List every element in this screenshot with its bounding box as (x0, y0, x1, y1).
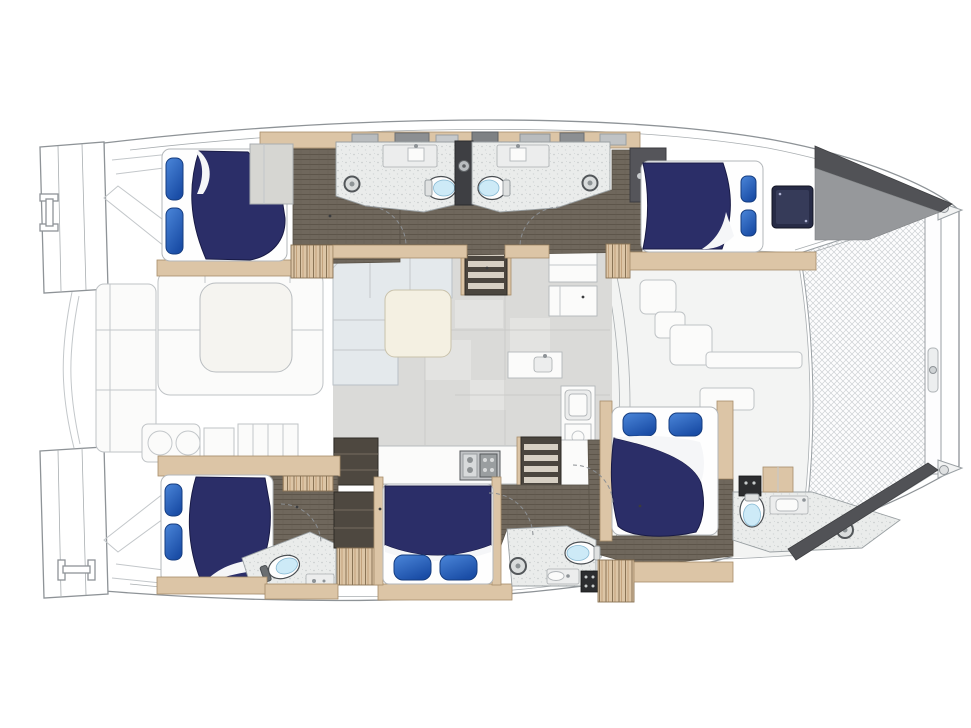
starboard-mid-head (507, 526, 600, 592)
wardrobe (250, 144, 293, 204)
louver-hatch (283, 476, 333, 491)
pillow (166, 208, 183, 254)
starboard-transom-platform (40, 447, 108, 598)
shower-column (455, 141, 473, 205)
starboard-shelves (334, 492, 380, 548)
catamaran-floorplan (0, 0, 971, 728)
head-cabinet (581, 571, 598, 592)
toilet (740, 494, 764, 527)
starboard-forward-bed (611, 407, 718, 536)
foredeck-step (706, 352, 802, 368)
cockpit-table (200, 283, 292, 372)
forward-crossbeam (925, 206, 941, 474)
port-forward-trim (630, 252, 816, 270)
louver-hatch (337, 548, 379, 585)
louver-hatch (291, 245, 333, 278)
pillow (165, 484, 182, 516)
foredeck-seat (640, 280, 676, 314)
louver-hatch (598, 560, 634, 602)
port-aft-trim (157, 260, 297, 276)
starboard-mid-bed (383, 484, 493, 584)
pillow (669, 413, 702, 436)
pillow (394, 555, 431, 580)
head-cabinet (739, 476, 761, 496)
tv-hatch (772, 186, 813, 228)
cockpit-lockers (238, 424, 298, 458)
starboard-companionway-steps (517, 437, 561, 487)
cockpit-module (204, 428, 234, 456)
stern-rail (63, 292, 80, 448)
duvet (385, 486, 491, 556)
port-aft-head (336, 142, 458, 212)
pillow (166, 158, 183, 200)
aft-cockpit (63, 270, 323, 462)
toilet (478, 177, 510, 200)
pillow (741, 176, 756, 202)
pillow (165, 524, 182, 560)
pillow (741, 210, 756, 236)
galley-fridge (549, 248, 597, 316)
starboard-aft-trim (158, 456, 340, 476)
stove (460, 451, 500, 480)
pillow (440, 555, 477, 580)
floorplan-canvas (0, 0, 971, 728)
port-forward-bed (641, 161, 763, 252)
pillow (623, 413, 656, 436)
salon-table (385, 290, 451, 357)
salon-shelves (334, 438, 378, 485)
louver-hatch (606, 244, 630, 278)
salon (333, 242, 612, 487)
toilet (425, 177, 456, 200)
